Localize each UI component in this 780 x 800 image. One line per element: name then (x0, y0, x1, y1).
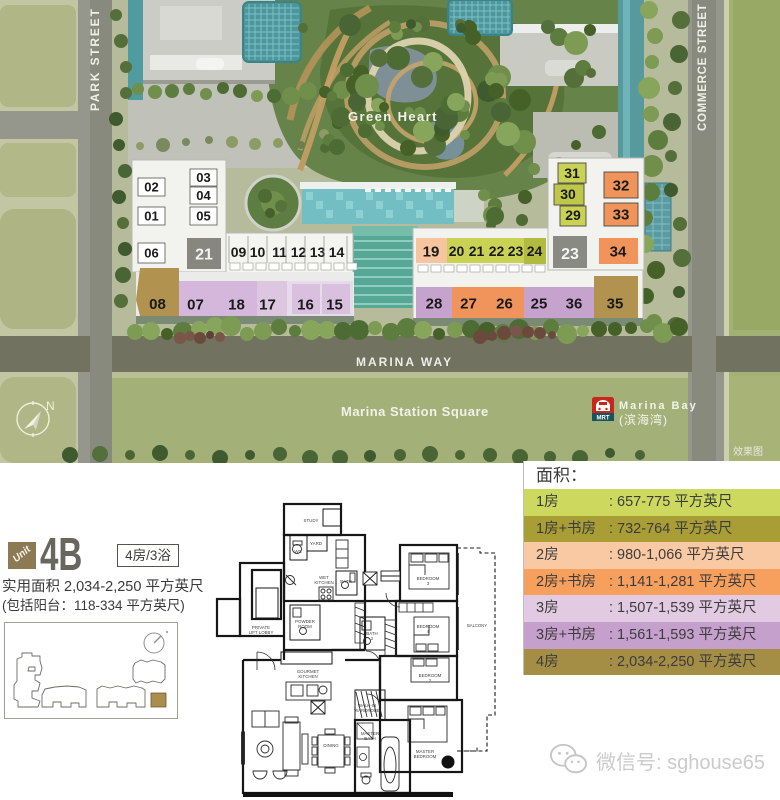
svg-text:PARK STREET: PARK STREET (88, 7, 102, 111)
svg-text:31: 31 (564, 165, 580, 181)
svg-text:Marina Bay: Marina Bay (619, 400, 698, 412)
svg-text:KITCHEN: KITCHEN (298, 674, 317, 679)
svg-text:效果图: 效果图 (733, 445, 763, 458)
svg-text:36: 36 (566, 295, 583, 312)
svg-text:YARD: YARD (310, 541, 322, 546)
svg-text:BATH: BATH (364, 736, 375, 741)
svg-text:3: 3 (427, 581, 430, 586)
svg-text:2: 2 (371, 636, 374, 641)
svg-text:STUDY: STUDY (304, 518, 319, 523)
svg-text:23: 23 (561, 246, 579, 263)
svg-text:12: 12 (291, 244, 307, 260)
svg-text:35: 35 (607, 295, 624, 312)
svg-text:19: 19 (423, 243, 440, 260)
svg-text:18: 18 (228, 296, 245, 313)
svg-text:14: 14 (329, 244, 345, 260)
svg-text:16: 16 (297, 296, 314, 313)
svg-text:27: 27 (460, 295, 477, 312)
svg-text:34: 34 (610, 243, 627, 260)
svg-text:(滨海湾): (滨海湾) (619, 412, 668, 427)
svg-text:32: 32 (613, 177, 630, 194)
svg-text:26: 26 (496, 295, 513, 312)
svg-text:25: 25 (531, 295, 548, 312)
svg-text:23: 23 (508, 243, 524, 259)
svg-text:21: 21 (469, 243, 485, 259)
svg-text:11: 11 (272, 244, 287, 260)
svg-text:21: 21 (195, 246, 213, 263)
svg-text:02: 02 (144, 180, 158, 195)
svg-text:29: 29 (565, 207, 581, 223)
svg-text:13: 13 (310, 244, 326, 260)
svg-text:COMMERCE STREET: COMMERCE STREET (697, 4, 709, 131)
svg-text:24: 24 (527, 243, 543, 259)
svg-text:BATH: BATH (340, 579, 351, 584)
svg-text:03: 03 (196, 170, 210, 185)
svg-text:22: 22 (489, 243, 505, 259)
svg-text:DINING: DINING (323, 743, 339, 748)
svg-text:09: 09 (231, 244, 247, 260)
svg-text:LIFT LOBBY: LIFT LOBBY (249, 630, 274, 635)
svg-text:N: N (46, 399, 55, 413)
svg-text:Marina Station Square: Marina Station Square (341, 404, 489, 419)
svg-text:06: 06 (144, 246, 158, 261)
svg-text:33: 33 (613, 206, 630, 223)
svg-text:30: 30 (560, 186, 576, 202)
svg-text:08: 08 (149, 296, 166, 313)
svg-text:15: 15 (326, 296, 343, 313)
svg-text:BEDROOM: BEDROOM (414, 754, 437, 759)
svg-text:01: 01 (144, 209, 158, 224)
svg-text:WC: WC (294, 549, 301, 554)
svg-text:28: 28 (426, 295, 443, 312)
svg-text:ROOM: ROOM (298, 624, 312, 629)
svg-text:10: 10 (250, 244, 266, 260)
svg-text:17: 17 (259, 296, 276, 313)
svg-text:MARINA WAY: MARINA WAY (356, 355, 453, 369)
svg-text:Green Heart: Green Heart (348, 109, 438, 124)
svg-text:20: 20 (449, 243, 465, 259)
svg-text:WARDROBE: WARDROBE (354, 708, 380, 713)
svg-text:05: 05 (196, 209, 210, 224)
svg-text:MRT: MRT (597, 416, 610, 422)
svg-text:BALCONY: BALCONY (467, 623, 487, 628)
svg-text:KITCHEN: KITCHEN (314, 580, 333, 585)
svg-text:07: 07 (187, 296, 204, 313)
svg-text:04: 04 (196, 188, 211, 203)
